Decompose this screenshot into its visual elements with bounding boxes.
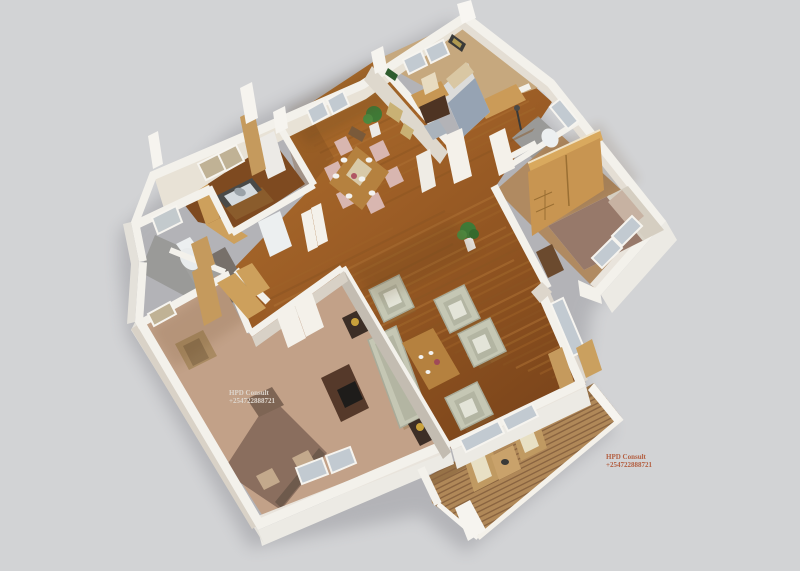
- svg-text:+254722888721: +254722888721: [606, 461, 652, 469]
- svg-text:HPD Consult: HPD Consult: [606, 453, 647, 461]
- svg-text:+254722888721: +254722888721: [229, 397, 275, 405]
- svg-text:HPD Consult: HPD Consult: [229, 389, 270, 397]
